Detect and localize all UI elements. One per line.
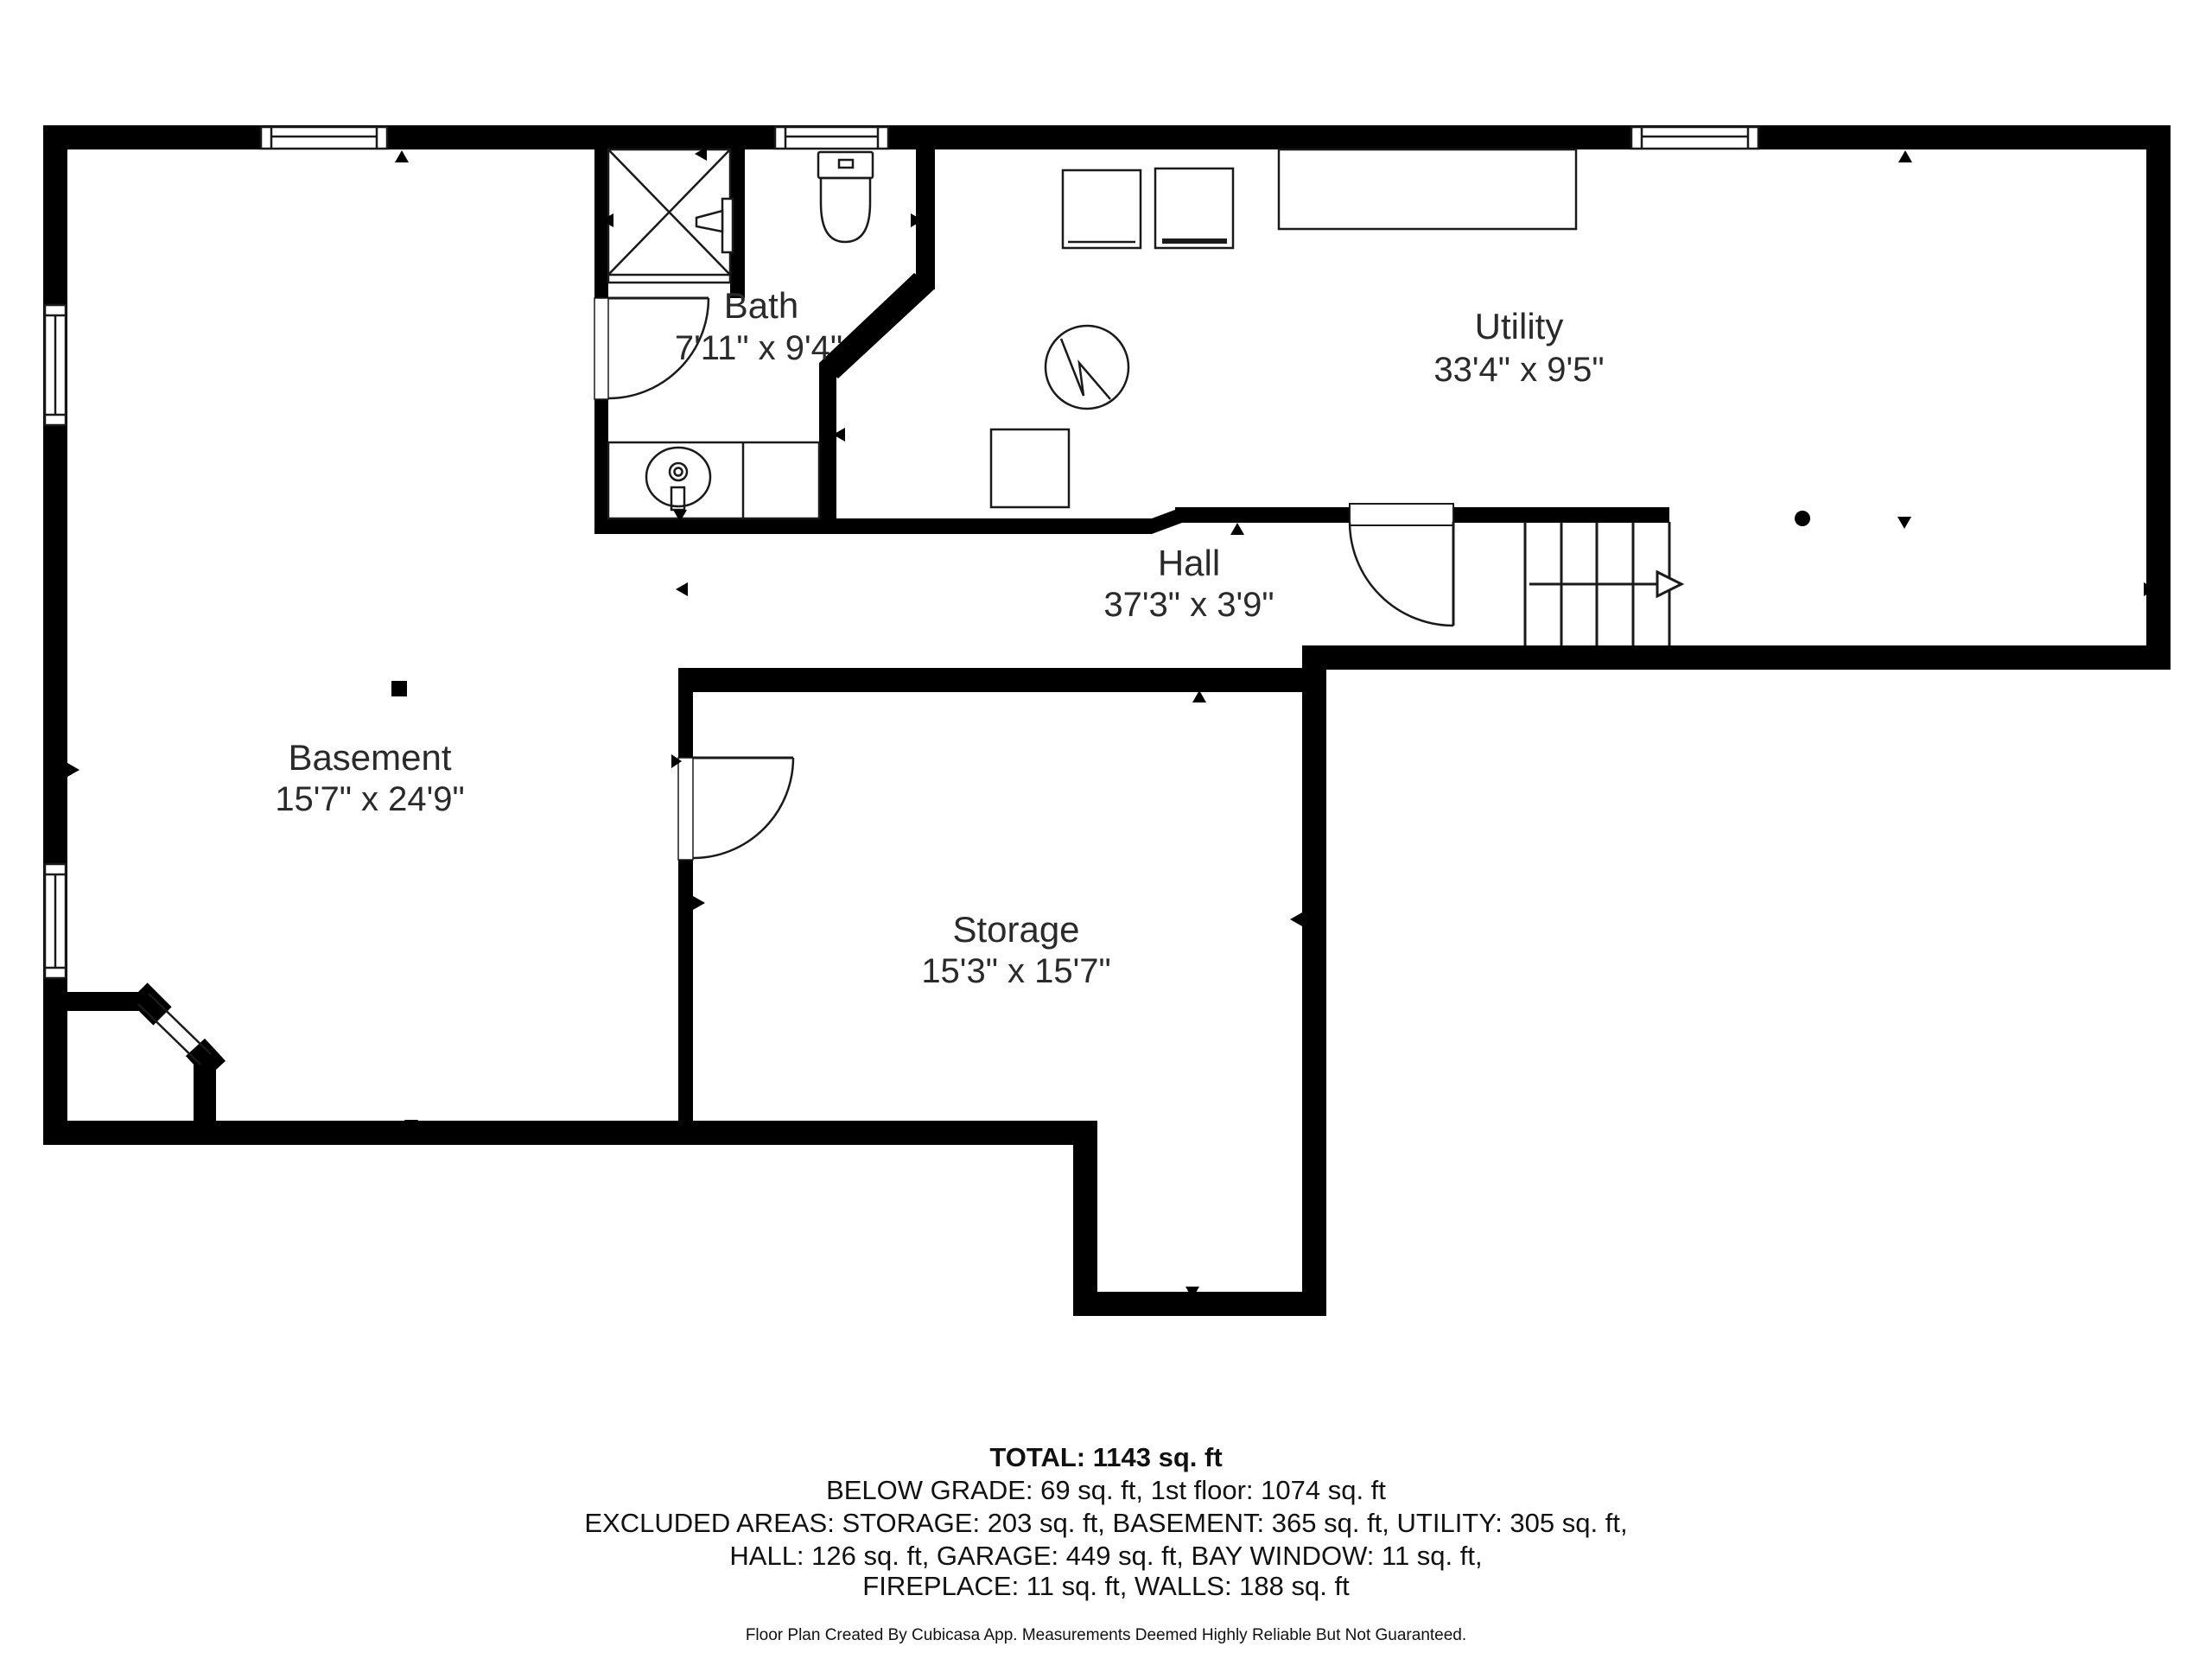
room-dims-utility: 33'4" x 9'5" — [1433, 351, 1604, 389]
room-dims-storage: 15'3" x 15'7" — [921, 952, 1110, 990]
wall — [678, 668, 693, 758]
wall — [43, 992, 143, 1011]
excluded-areas-text-1: EXCLUDED AREAS: STORAGE: 203 sq. ft, BAS… — [0, 1507, 2212, 1540]
room-dims-hall: 37'3" x 3'9" — [1103, 586, 1274, 624]
door — [678, 758, 793, 860]
room-dims-bath: 7'11" x 9'4" — [675, 329, 842, 367]
wall — [1302, 645, 2171, 670]
marker-triangle — [676, 582, 688, 596]
wall — [594, 149, 608, 298]
washer-fixture — [1063, 170, 1141, 248]
floor-plan-drawing: Bath 7'11" x 9'4" Utility 33'4" x 9'5" H… — [0, 0, 2212, 1659]
wall — [916, 125, 935, 289]
wall — [1302, 645, 1326, 1316]
fixtures — [608, 149, 1681, 645]
marker-triangle — [395, 150, 409, 162]
wall — [594, 518, 1152, 534]
floor-plan-page: Bath 7'11" x 9'4" Utility 33'4" x 9'5" H… — [0, 0, 2212, 1659]
walls — [43, 125, 2171, 1316]
marker-square — [391, 681, 407, 696]
room-label-bath: Bath — [724, 285, 798, 326]
marker-triangle — [1230, 523, 1244, 535]
water-heater-fixture — [1046, 326, 1128, 409]
shower-fixture — [608, 149, 733, 283]
wall — [678, 860, 693, 1145]
furnace-fixture — [991, 429, 1069, 507]
marker-triangle — [1192, 690, 1206, 702]
room-label-basement: Basement — [288, 737, 451, 778]
marker-triangle — [67, 763, 79, 777]
wall — [678, 668, 1326, 692]
excluded-areas-text-2: HALL: 126 sq. ft, GARAGE: 449 sq. ft, BA… — [0, 1540, 2212, 1573]
stairs — [1525, 522, 1681, 645]
wall — [1073, 1121, 1097, 1316]
wall — [1453, 507, 1669, 523]
sink-vanity-fixture — [608, 442, 819, 518]
room-label-utility: Utility — [1475, 306, 1564, 346]
wall — [819, 363, 836, 534]
marker-triangle — [693, 896, 705, 910]
room-label-hall: Hall — [1158, 543, 1220, 583]
room-dims-basement: 15'7" x 24'9" — [275, 780, 464, 818]
window — [45, 305, 66, 425]
toilet-fixture — [818, 152, 873, 242]
window — [261, 127, 387, 149]
excluded-areas-text-3: FIREPLACE: 11 sq. ft, WALLS: 188 sq. ft — [0, 1570, 2212, 1603]
window — [45, 864, 66, 978]
window — [775, 127, 888, 149]
total-area-text: TOTAL: 1143 sq. ft — [0, 1441, 2212, 1474]
room-label-storage: Storage — [952, 909, 1079, 950]
marker-dot — [1795, 511, 1810, 526]
marker-triangle — [1897, 517, 1911, 529]
wall — [594, 399, 608, 518]
wall — [1175, 507, 1350, 523]
window — [1631, 127, 1758, 149]
door — [1350, 504, 1453, 626]
dryer-fixture — [1155, 168, 1233, 248]
marker-triangle — [1290, 912, 1302, 926]
wall — [1073, 1292, 1326, 1316]
disclaimer-text: Floor Plan Created By Cubicasa App. Meas… — [0, 1626, 2212, 1645]
room-labels: Bath 7'11" x 9'4" Utility 33'4" x 9'5" H… — [275, 285, 1604, 990]
countertop-fixture — [1279, 149, 1576, 229]
below-grade-text: BELOW GRADE: 69 sq. ft, 1st floor: 1074 … — [0, 1474, 2212, 1507]
windows — [45, 127, 1758, 1065]
marker-triangle — [1898, 150, 1912, 162]
